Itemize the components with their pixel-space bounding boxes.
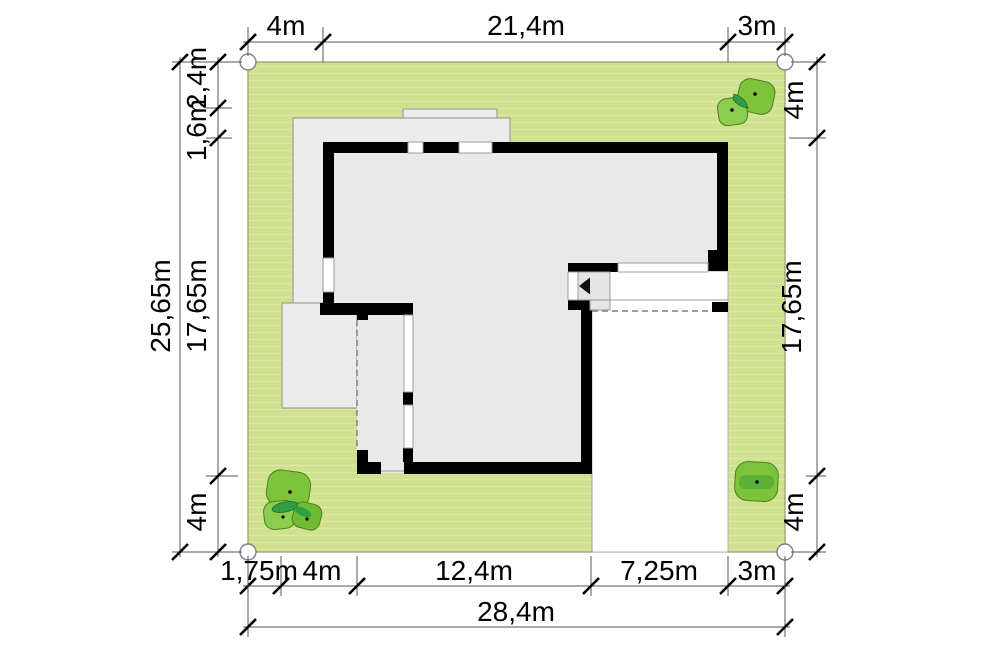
wall-column-foot	[403, 448, 413, 462]
tree-bottom-right	[734, 461, 779, 502]
dim-left-4: 4m	[181, 493, 212, 532]
dim-right-1: 4m	[778, 81, 809, 120]
dim-right-3: 4m	[778, 493, 809, 532]
wall-column-pier	[403, 392, 413, 405]
dim-bottom-1: 1,75m	[220, 555, 298, 586]
dim-bottom-2: 4m	[303, 555, 342, 586]
window-porch	[618, 263, 708, 272]
dim-bottom-total: 28,4m	[477, 596, 555, 627]
dim-left-total: 25,65m	[145, 259, 176, 352]
dim-top-right: 3m	[738, 10, 777, 41]
dim-left-3: 17,65m	[181, 259, 212, 352]
wall-interior-horizontal	[320, 303, 413, 315]
corner-marker	[777, 54, 793, 70]
floor-lower	[357, 303, 581, 463]
driveway	[592, 271, 728, 552]
entry-step-lower	[590, 300, 610, 310]
site-plan-page: 4m 21,4m 3m 1,75m 4m 12,4m 7,25m 3m 28,4…	[0, 0, 1000, 655]
wall-bottom-left-foot	[357, 462, 381, 474]
tree-trunk-dot	[755, 480, 759, 484]
wall-stub-right	[712, 302, 728, 312]
tree-trunk-dot	[730, 108, 734, 112]
dim-left-2: 1,6m	[181, 99, 212, 161]
site-plan-drawing: 4m 21,4m 3m 1,75m 4m 12,4m 7,25m 3m 28,4…	[0, 0, 1000, 655]
dim-top-center: 21,4m	[487, 10, 565, 41]
window-column-2	[404, 405, 413, 448]
dim-right-2: 17,65m	[776, 260, 807, 353]
entry-door-gap	[568, 272, 578, 300]
window-column-1	[404, 315, 413, 392]
floor-left	[333, 263, 568, 304]
tree-trunk-dot	[281, 515, 284, 518]
wall-corner-block	[708, 250, 728, 271]
wall-bottom	[404, 462, 592, 474]
wall-entry-block	[568, 300, 590, 310]
wall-garage	[581, 310, 592, 462]
window-top-1	[408, 142, 423, 153]
corner-marker	[240, 54, 256, 70]
tree-trunk-dot	[305, 517, 308, 520]
dim-bottom-3: 12,4m	[435, 555, 513, 586]
dim-bottom-5: 3m	[738, 555, 777, 586]
dim-bottom-4: 7,25m	[620, 555, 698, 586]
wall-entry	[568, 263, 618, 272]
window-top-2	[459, 142, 492, 153]
wall-top	[323, 142, 728, 153]
terrace-lower	[282, 303, 357, 408]
floor-main	[333, 151, 717, 264]
tree-trunk-dot	[753, 92, 757, 96]
wall-stub-small	[357, 315, 368, 320]
window-left	[323, 258, 334, 292]
tree-trunk-dot	[288, 490, 292, 494]
dim-top-left: 4m	[267, 10, 306, 41]
